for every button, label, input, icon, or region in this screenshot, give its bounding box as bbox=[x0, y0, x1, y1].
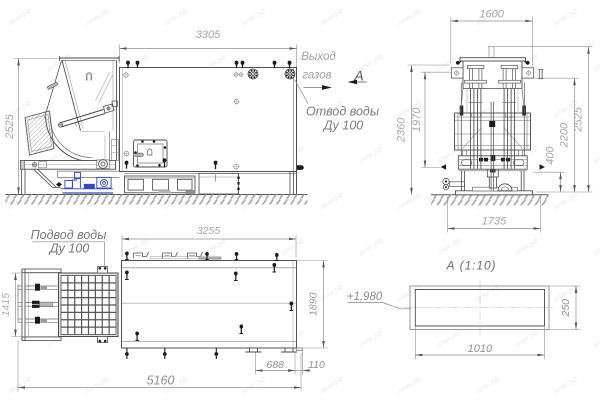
svg-text:5160: 5160 bbox=[147, 374, 175, 388]
svg-text:лтех.рф: лтех.рф bbox=[84, 375, 111, 396]
svg-text:лтех.рф: лтех.рф bbox=[84, 7, 111, 28]
svg-text:лтех.рф: лтех.рф bbox=[396, 7, 423, 28]
svg-text:лтех.рф: лтех.рф bbox=[591, 329, 600, 350]
svg-text:А (1:10): А (1:10) bbox=[446, 259, 497, 273]
svg-text:лтех.рф: лтех.рф bbox=[318, 375, 345, 396]
svg-text:лтех.рф: лтех.рф bbox=[552, 375, 579, 396]
svg-text:1415: 1415 bbox=[0, 293, 12, 317]
svg-text:лтех.рф: лтех.рф bbox=[435, 329, 462, 350]
svg-text:лтех.рф: лтех.рф bbox=[357, 237, 384, 258]
svg-text:400: 400 bbox=[545, 145, 557, 164]
svg-text:лтех.рф: лтех.рф bbox=[513, 237, 540, 258]
svg-text:2360: 2360 bbox=[396, 117, 408, 143]
svg-text:лтех.рф: лтех.рф bbox=[435, 237, 462, 258]
svg-text:3255: 3255 bbox=[197, 225, 221, 237]
svg-text:лтех.рф: лтех.рф bbox=[396, 375, 423, 396]
svg-text:688: 688 bbox=[266, 359, 284, 371]
svg-text:1600: 1600 bbox=[479, 9, 504, 21]
svg-text:лтех.рф: лтех.рф bbox=[552, 191, 579, 212]
svg-text:лтех.рф: лтех.рф bbox=[357, 329, 384, 350]
svg-text:Выход: Выход bbox=[301, 51, 336, 63]
svg-text:Отвод воды: Отвод воды bbox=[306, 105, 379, 119]
svg-text:лтех.рф: лтех.рф bbox=[6, 375, 33, 396]
svg-text:лтех.рф: лтех.рф bbox=[318, 7, 345, 28]
svg-text:2525: 2525 bbox=[573, 106, 585, 132]
svg-text:Ду 100: Ду 100 bbox=[322, 119, 364, 133]
svg-text:газов: газов bbox=[302, 70, 331, 82]
svg-text:лтех.рф: лтех.рф bbox=[318, 191, 345, 212]
svg-text:1010: 1010 bbox=[468, 343, 493, 355]
svg-text:лтех.рф: лтех.рф bbox=[357, 145, 384, 166]
svg-text:250: 250 bbox=[560, 299, 572, 318]
svg-text:3305: 3305 bbox=[196, 29, 221, 41]
svg-text:лтех.рф: лтех.рф bbox=[240, 7, 267, 28]
svg-text:лтех.рф: лтех.рф bbox=[201, 237, 228, 258]
svg-text:лтех.рф: лтех.рф bbox=[6, 7, 33, 28]
svg-text:лтех.рф: лтех.рф bbox=[396, 191, 423, 212]
svg-text:лтех.рф: лтех.рф bbox=[591, 53, 600, 74]
svg-text:1970: 1970 bbox=[411, 107, 423, 132]
svg-text:2200: 2200 bbox=[559, 122, 571, 148]
svg-text:1890: 1890 bbox=[308, 292, 320, 316]
svg-text:2525: 2525 bbox=[4, 113, 16, 139]
svg-text:+1,980: +1,980 bbox=[347, 291, 383, 303]
svg-text:лтех.рф: лтех.рф bbox=[513, 329, 540, 350]
svg-text:лтех.рф: лтех.рф bbox=[591, 237, 600, 258]
svg-text:110: 110 bbox=[308, 359, 325, 371]
svg-text:1735: 1735 bbox=[482, 216, 507, 228]
svg-text:Подвод воды: Подвод воды bbox=[31, 228, 107, 242]
svg-text:лтех.рф: лтех.рф bbox=[318, 283, 345, 304]
svg-text:лтех.рф: лтех.рф bbox=[240, 375, 267, 396]
svg-text:лтех.рф: лтех.рф bbox=[552, 7, 579, 28]
svg-text:Ду 100: Ду 100 bbox=[48, 242, 90, 256]
svg-text:лтех.рф: лтех.рф bbox=[279, 237, 306, 258]
svg-text:лтех.рф: лтех.рф bbox=[591, 145, 600, 166]
svg-text:лтех.рф: лтех.рф bbox=[474, 375, 501, 396]
svg-text:лтех.рф: лтех.рф bbox=[162, 7, 189, 28]
